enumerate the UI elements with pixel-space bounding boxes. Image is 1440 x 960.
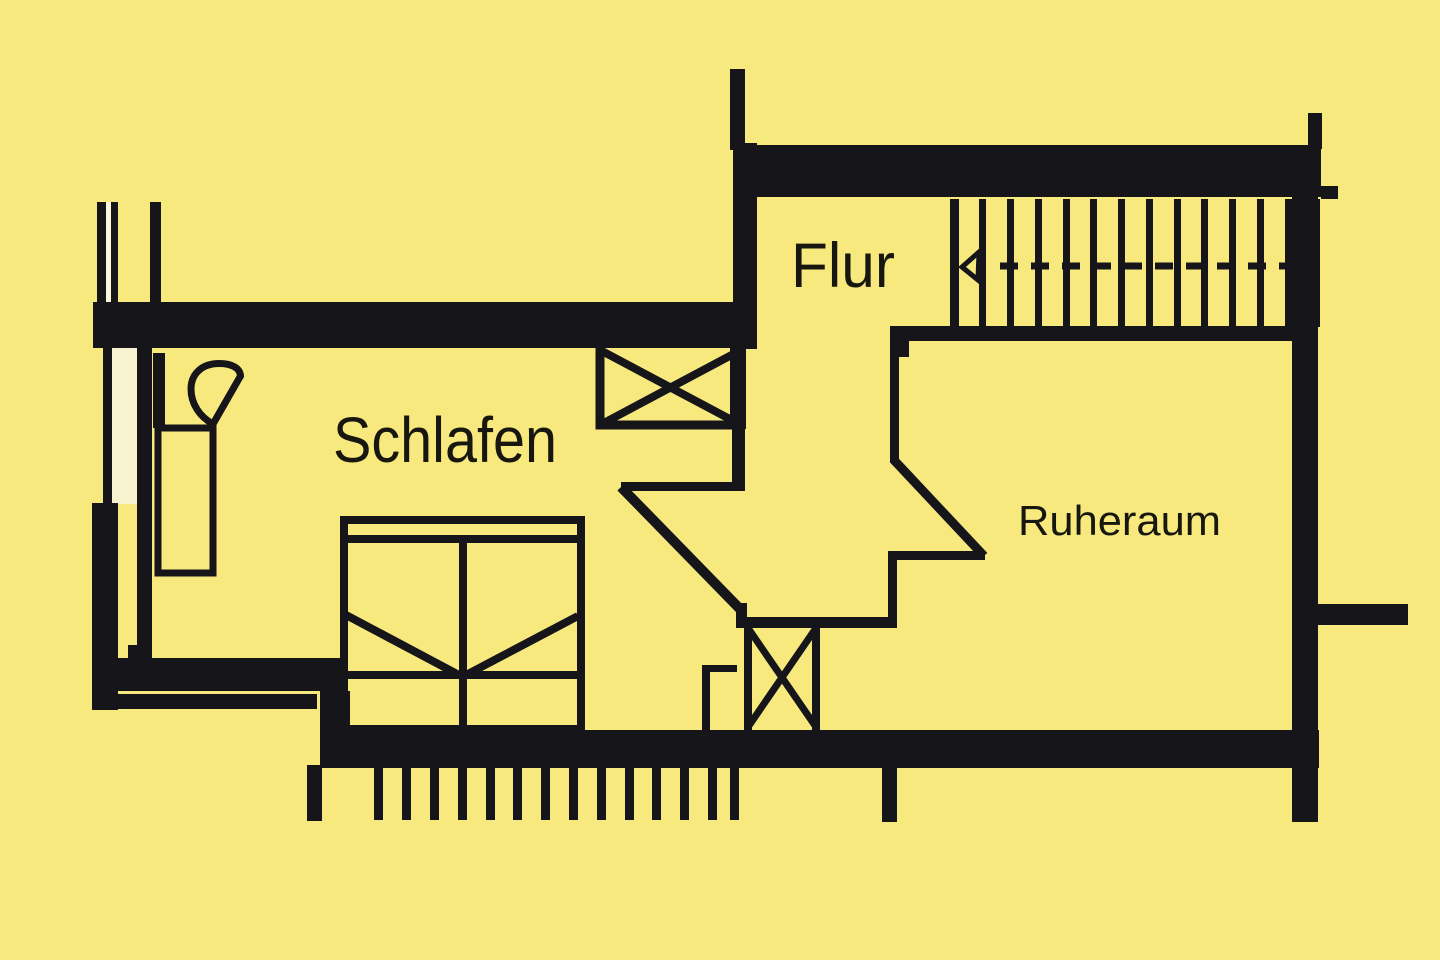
svg-text:Schlafen: Schlafen — [333, 404, 557, 476]
svg-text:Ruheraum: Ruheraum — [1018, 497, 1221, 544]
svg-text:Flur: Flur — [791, 231, 895, 301]
